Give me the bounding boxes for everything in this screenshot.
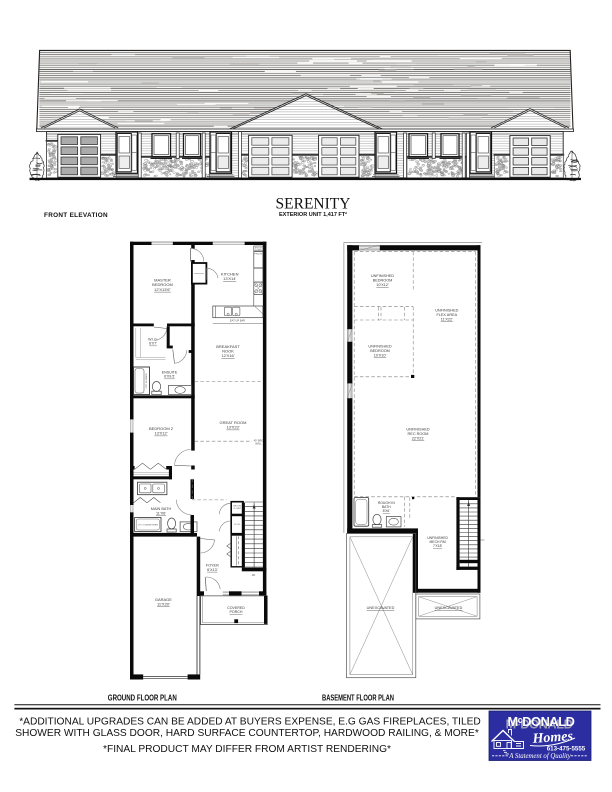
svg-text:FOYER: FOYER (206, 563, 219, 567)
svg-text:13'X12': 13'X12' (154, 431, 167, 436)
svg-text:UNEXCAVATED: UNEXCAVATED (367, 606, 395, 610)
svg-text:FRIDGE: FRIDGE (255, 254, 263, 256)
svg-text:22'X21': 22'X21' (412, 437, 425, 441)
svg-text:6'X13': 6'X13' (207, 568, 218, 572)
svg-text:10'X12': 10'X12' (376, 283, 389, 287)
svg-text:12'X13'6": 12'X13'6" (154, 287, 171, 292)
svg-text:DN: DN (252, 574, 256, 577)
svg-text:REC ROOM: REC ROOM (408, 432, 429, 436)
svg-text:WALL: WALL (255, 442, 262, 445)
svg-text:10'X10': 10'X10' (374, 354, 387, 358)
svg-text:UNEXCAVATED: UNEXCAVATED (435, 606, 463, 610)
svg-text:6'X7': 6'X7' (149, 342, 157, 346)
svg-text:13'X14': 13'X14' (223, 276, 236, 281)
svg-text:12'X16': 12'X16' (221, 353, 234, 358)
svg-text:CLOSET: CLOSET (255, 249, 263, 251)
svg-text:8'X6': 8'X6' (383, 509, 391, 513)
svg-text:Homes: Homes (531, 729, 574, 747)
svg-text:FRONT ELEVATION: FRONT ELEVATION (44, 212, 108, 219)
svg-text:1 PC SHOWER: 1 PC SHOWER (146, 373, 148, 389)
svg-text:*ADDITIONAL UPGRADES CAN BE AD: *ADDITIONAL UPGRADES CAN BE ADDED AT BUY… (19, 717, 481, 728)
svg-text:7'X18': 7'X18' (433, 544, 443, 548)
svg-text:UNFINISHED: UNFINISHED (371, 274, 394, 278)
svg-text:CLOSET: CLOSET (233, 508, 242, 510)
svg-text:11'X20': 11'X20' (157, 602, 170, 607)
svg-text:1 PC TUB/SHOWER: 1 PC TUB/SHOWER (138, 525, 159, 527)
svg-text:UNFINISHED: UNFINISHED (435, 309, 458, 313)
svg-text:SERENITY: SERENITY (276, 196, 351, 213)
svg-text:PORCH: PORCH (230, 610, 243, 614)
svg-text:BASEMENT FLOOR PLAN: BASEMENT FLOOR PLAN (322, 694, 394, 703)
svg-text:11'X6': 11'X6' (156, 512, 166, 516)
svg-text:FLEX AREA: FLEX AREA (436, 313, 457, 317)
svg-text:MAIN BATH: MAIN BATH (151, 507, 172, 511)
svg-text:A Statement of Quality: A Statement of Quality (508, 753, 572, 760)
svg-text:UNFINISHED: UNFINISHED (406, 428, 429, 432)
svg-text:BEDROOM: BEDROOM (373, 279, 393, 283)
svg-text:UNFINISHED: UNFINISHED (368, 345, 391, 349)
svg-text:613-475-5555: 613-475-5555 (547, 746, 586, 753)
svg-text:EXTERIOR UNIT 1,417 FT²: EXTERIOR UNIT 1,417 FT² (279, 212, 347, 218)
svg-text:6'X9.5': 6'X9.5' (164, 375, 175, 379)
svg-text:BEDROOM: BEDROOM (370, 349, 390, 353)
svg-text:13'X23': 13'X23' (226, 425, 239, 430)
svg-text:GROUND FLOOR PLAN: GROUND FLOOR PLAN (108, 694, 177, 703)
svg-text:11'X22': 11'X22' (441, 318, 453, 322)
svg-text:SHOWER WITH GLASS DOOR, HARD S: SHOWER WITH GLASS DOOR, HARD SURFACE COU… (15, 728, 479, 739)
svg-text:CLOS.: CLOS. (234, 524, 241, 526)
svg-text:EAT UP BAR: EAT UP BAR (230, 319, 245, 323)
svg-text:*FINAL PRODUCT MAY DIFFER FROM: *FINAL PRODUCT MAY DIFFER FROM ARTIST RE… (103, 744, 391, 755)
svg-text:MᶜDONALD: MᶜDONALD (507, 714, 574, 729)
